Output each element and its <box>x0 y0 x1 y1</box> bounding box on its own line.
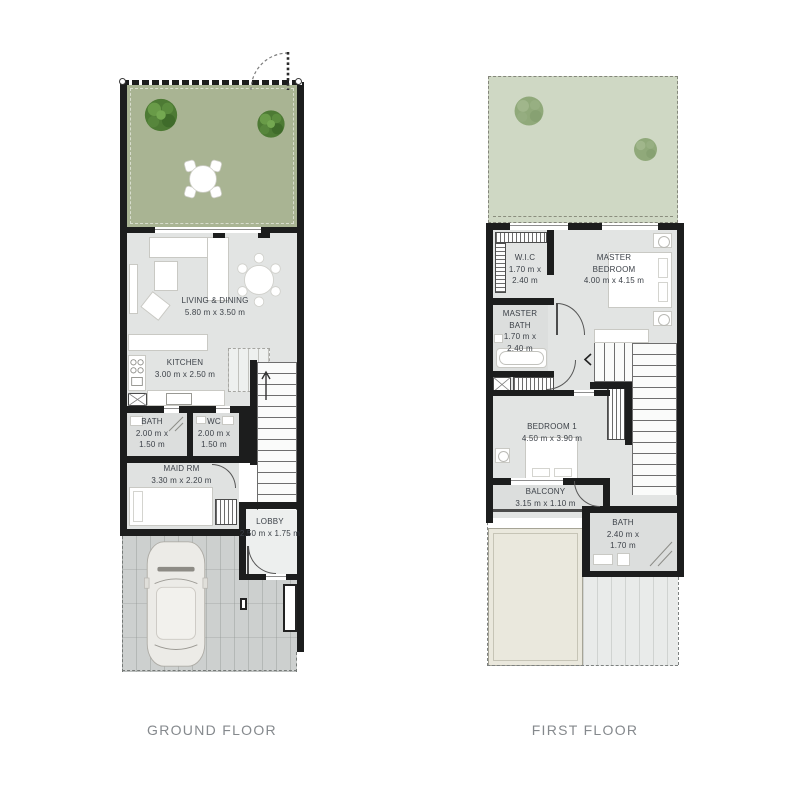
room-label-wc: WC 2.00 m x 1.50 m <box>190 416 238 451</box>
room-dims: 2.00 m x 1.50 m <box>194 428 234 451</box>
room-label-wic: W.I.C 1.70 m x 2.40 m <box>500 252 550 287</box>
room-name: BATH <box>126 416 178 428</box>
room-dims: 1.70 m x 2.40 m <box>504 264 546 287</box>
maid-bed <box>129 487 213 526</box>
lamp-icon <box>658 314 670 326</box>
room-dims: 2.50 m x 1.75 m <box>239 528 301 540</box>
room-label-kitchen: KITCHEN 3.00 m x 2.50 m <box>140 357 230 380</box>
wall-stairs-left <box>625 382 632 445</box>
room-dims: 5.80 m x 3.50 m <box>150 307 280 319</box>
room-label-bath-first: BATH 2.40 m x 1.70 m <box>594 517 652 552</box>
room-name: BALCONY <box>498 486 593 498</box>
stairs-direction-arrow-icon <box>260 368 272 402</box>
tree-icon <box>255 108 287 140</box>
tree-icon <box>632 136 659 163</box>
room-dims: 3.15 m x 1.10 m <box>498 498 593 510</box>
floorplan-canvas: LIVING & DINING 5.80 m x 3.50 m KITCHEN <box>0 0 800 800</box>
room-name: WC <box>190 416 238 428</box>
wall-masterbath-bottom <box>486 371 554 377</box>
room-label-bath: BATH 2.00 m x 1.50 m <box>126 416 178 451</box>
shaft-icon <box>128 393 147 406</box>
sofa-chaise <box>154 261 178 291</box>
entrance-door-leaf <box>247 546 249 574</box>
driveway-view <box>583 577 678 666</box>
first-floor-plan: W.I.C 1.70 m x 2.40 m MASTER BATH 1.70 m… <box>486 60 684 705</box>
master-bedroom-door-leaf <box>556 303 558 335</box>
canopy-inner-line <box>493 533 578 661</box>
garden-table-set <box>182 158 224 200</box>
plot-boundary-right <box>296 652 297 672</box>
kitchen-counter-sink <box>147 390 225 406</box>
room-dims: 2.00 m x 1.50 m <box>132 428 172 451</box>
room-name: LIVING & DINING <box>150 295 280 307</box>
room-name: MASTER BEDROOM <box>580 252 648 275</box>
sink <box>166 393 192 405</box>
room-name: BATH <box>594 517 652 529</box>
gate-stopper <box>240 598 247 610</box>
carport-canopy-view <box>488 528 583 666</box>
room-label-master-bath: MASTER BATH 1.70 m x 2.40 m <box>492 308 548 354</box>
room-name: MASTER BATH <box>497 308 543 331</box>
console-table <box>129 264 138 314</box>
room-label-bedroom1: BEDROOM 1 4.50 m x 3.90 m <box>506 421 598 444</box>
wall-wic-masterbath <box>486 298 554 305</box>
wall-lobby-top <box>239 502 304 509</box>
wic-window <box>510 223 568 230</box>
room-label-balcony: BALCONY 3.15 m x 1.10 m <box>498 486 593 509</box>
first-floor-title: FIRST FLOOR <box>486 722 684 738</box>
room-dims: 4.50 m x 3.90 m <box>506 433 598 445</box>
entry-gate-swing-icon <box>248 50 294 92</box>
room-name: W.I.C <box>500 252 550 264</box>
dresser <box>594 329 649 343</box>
room-dims: 4.00 m x 4.15 m <box>568 275 660 287</box>
tree-icon <box>142 96 180 134</box>
bedroom-window <box>602 223 658 230</box>
wall-stairs-left <box>250 360 257 465</box>
room-label-maid: MAID RM 3.30 m x 2.20 m <box>134 463 229 486</box>
wall-bath-maid <box>120 456 250 463</box>
lamp-icon <box>498 451 509 462</box>
maid-wardrobe <box>215 499 237 525</box>
room-dims: 3.00 m x 2.50 m <box>140 369 230 381</box>
staircase <box>632 343 677 495</box>
terrace-dashed-line <box>493 216 673 217</box>
lamp-icon <box>658 236 670 248</box>
wc-door-gap <box>216 406 230 413</box>
fence-knob-left <box>119 78 126 85</box>
column-stub <box>258 233 270 238</box>
wic-wardrobe-top <box>495 232 547 243</box>
room-label-lobby: LOBBY 2.50 m x 1.75 m <box>239 516 301 539</box>
room-name: MAID RM <box>134 463 229 475</box>
wall-right <box>677 223 684 577</box>
room-name: BEDROOM 1 <box>506 421 598 433</box>
wall-maid-garage <box>120 529 250 536</box>
utility-niche <box>283 584 297 632</box>
pillow <box>554 468 572 477</box>
column-stub <box>213 233 225 238</box>
sofa-side <box>207 237 229 301</box>
ground-floor-plan: LIVING & DINING 5.80 m x 3.50 m KITCHEN <box>120 50 304 695</box>
balcony-window <box>511 478 563 485</box>
toilet <box>617 553 630 566</box>
room-name: LOBBY <box>239 516 301 528</box>
nightstand <box>653 311 672 326</box>
bedroom1-door-gap <box>574 390 594 396</box>
plot-boundary-bottom <box>122 670 297 671</box>
room-dims: 3.30 m x 2.20 m <box>134 475 229 487</box>
wall-kitchen-bath <box>120 406 250 413</box>
ground-floor-title: GROUND FLOOR <box>120 722 304 738</box>
bath-door-gap <box>164 406 179 413</box>
living-window <box>155 227 261 233</box>
plot-boundary-bottom <box>487 665 678 666</box>
room-dims: 2.40 m x 1.70 m <box>600 529 646 552</box>
wall-lobby-left <box>239 502 246 580</box>
plot-boundary-right <box>678 577 679 665</box>
wall-wc-stairs <box>239 406 250 456</box>
side-table <box>495 448 510 463</box>
wall-bath-top <box>582 506 677 513</box>
tree-icon <box>512 94 546 128</box>
car <box>142 539 210 669</box>
vanity-sink <box>593 554 613 565</box>
kitchen-counter-top <box>128 334 208 351</box>
entrance-door-gap <box>266 574 286 580</box>
room-name: KITCHEN <box>140 357 230 369</box>
fence-knob-right <box>295 78 302 85</box>
room-label-living: LIVING & DINING 5.80 m x 3.50 m <box>150 295 280 318</box>
plot-boundary-left <box>487 512 488 666</box>
staircase-upper-flight <box>594 338 632 382</box>
pillow <box>133 491 143 522</box>
plot-boundary-left <box>122 536 123 672</box>
wall-right <box>297 82 304 652</box>
room-dims: 1.70 m x 2.40 m <box>498 331 542 354</box>
nightstand <box>653 233 672 248</box>
stairs-direction-arrow-icon <box>582 352 593 367</box>
wall-bath-left <box>582 506 590 577</box>
room-label-master-bedroom: MASTER BEDROOM 4.00 m x 4.15 m <box>568 252 660 287</box>
pillow <box>532 468 550 477</box>
wall-bath-bottom <box>582 571 677 577</box>
